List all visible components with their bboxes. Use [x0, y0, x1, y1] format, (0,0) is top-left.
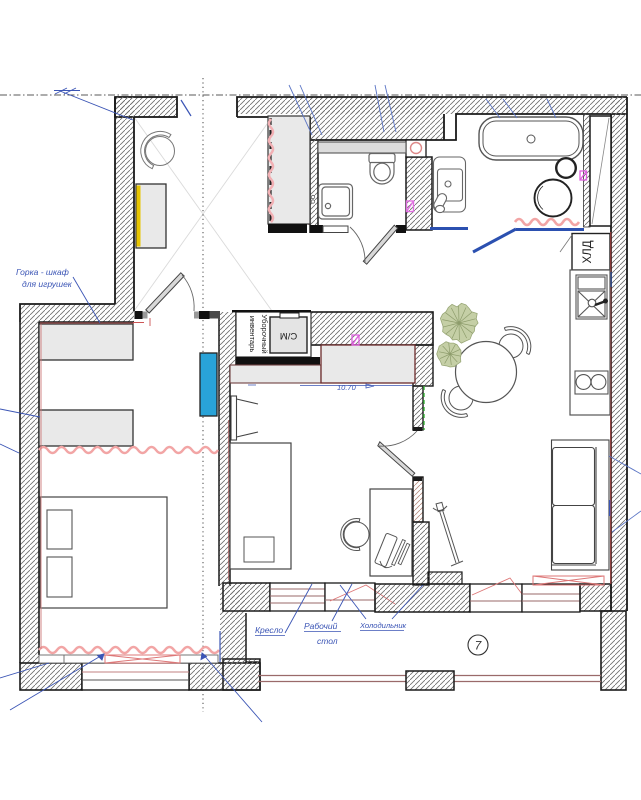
svg-text:Кресло: Кресло — [255, 625, 283, 635]
svg-text:Холодильник: Холодильник — [359, 621, 407, 630]
svg-text:для игрушек: для игрушек — [22, 279, 73, 289]
svg-text:ХЛД: ХЛД — [582, 240, 594, 263]
svg-text:10.70: 10.70 — [337, 383, 357, 392]
svg-text:Горка - шкаф: Горка - шкаф — [16, 267, 69, 277]
svg-text:инвентарь: инвентарь — [248, 316, 257, 353]
svg-text:стол: стол — [317, 636, 338, 646]
svg-text:Рабочий: Рабочий — [304, 621, 338, 631]
svg-text:С/М: С/М — [280, 330, 298, 341]
svg-text:Уборочный: Уборочный — [260, 314, 269, 353]
